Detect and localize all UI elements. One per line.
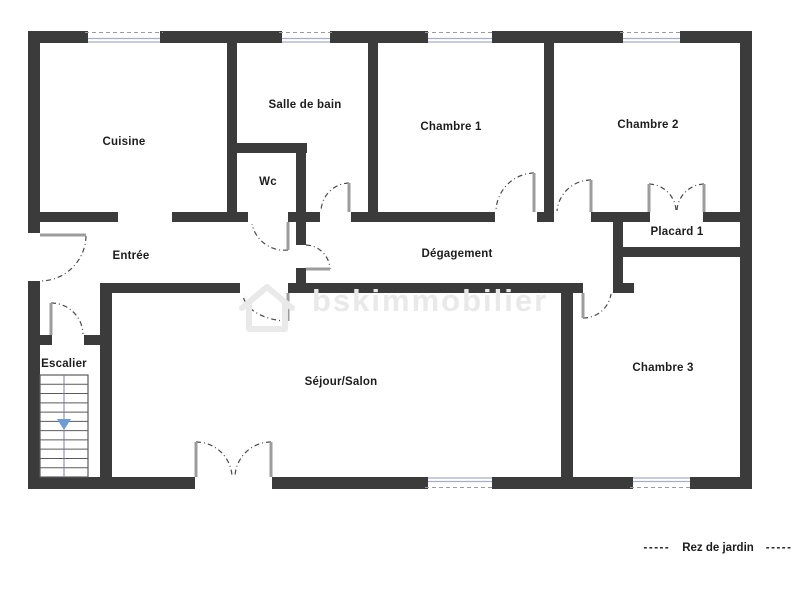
- closet-door-left-swing-arc: [649, 184, 676, 210]
- caption-text: Rez de jardin: [682, 542, 754, 554]
- bathroom-door-swing-arc: [321, 183, 349, 211]
- caption-dash-right: -----: [766, 542, 793, 554]
- closet-door-right-swing-arc: [677, 184, 704, 210]
- wc-door-swing-arc: [252, 224, 288, 250]
- room-label-entree: Entrée: [113, 250, 150, 262]
- wall-segment: [100, 283, 112, 477]
- room-label-chambre-3: Chambre 3: [632, 362, 693, 374]
- wall-segment: [227, 43, 237, 222]
- floor-caption: ----- Rez de jardin -----: [644, 542, 793, 554]
- hallway-door-swing-arc: [306, 245, 330, 269]
- wall-segment: [172, 212, 248, 222]
- wall-segment: [613, 222, 623, 293]
- room-label-chambre-2: Chambre 2: [617, 119, 678, 131]
- room-label-cuisine: Cuisine: [103, 136, 146, 148]
- wall-segment: [288, 212, 320, 222]
- wall-segment: [740, 43, 752, 489]
- watermark-text: bskimmobilier: [312, 283, 548, 318]
- wall-segment: [296, 268, 306, 293]
- room-label-salle-de-bain: Salle de bain: [269, 99, 342, 111]
- watermark-house-icon: [242, 287, 292, 329]
- wall-segment: [40, 335, 52, 345]
- wall-segment: [561, 293, 573, 477]
- stair-direction-arrow: [57, 419, 71, 430]
- floor-plan-page: bskimmobilier CuisineSalle de bainChambr…: [0, 0, 806, 597]
- bedroom3-door-swing-arc: [583, 294, 611, 318]
- wall-segment: [623, 247, 740, 257]
- wall-segment: [28, 477, 195, 489]
- bedroom2-door-swing-arc: [557, 180, 591, 211]
- wall-segment: [537, 212, 554, 222]
- wall-segment: [703, 212, 740, 222]
- wall-segment: [368, 43, 378, 222]
- room-label-sejour-salon: Séjour/Salon: [305, 376, 378, 388]
- garden-door-left-swing-arc: [196, 442, 232, 476]
- room-label-degagement: Dégagement: [421, 248, 492, 260]
- wall-segment: [28, 43, 40, 233]
- stairs-door-swing-arc: [51, 303, 83, 334]
- wall-segment: [84, 335, 112, 345]
- garden-door-right-swing-arc: [235, 442, 271, 476]
- room-label-placard-1: Placard 1: [651, 226, 704, 238]
- room-label-chambre-1: Chambre 1: [420, 121, 481, 133]
- wall-segment: [591, 212, 650, 222]
- wall-segment: [28, 281, 40, 489]
- caption-dash-left: -----: [644, 542, 671, 554]
- wall-segment: [40, 212, 118, 222]
- entrance-door-swing-arc: [41, 236, 86, 281]
- room-label-escalier: Escalier: [41, 358, 87, 370]
- room-label-wc: Wc: [259, 176, 277, 188]
- floor-plan-svg: bskimmobilier: [0, 0, 806, 597]
- wall-segment: [351, 212, 495, 222]
- wall-segment: [100, 283, 240, 293]
- bedroom1-door-swing-arc: [496, 173, 534, 211]
- wall-segment: [544, 43, 554, 222]
- wall-segment: [296, 143, 306, 245]
- wall-segment: [613, 283, 634, 293]
